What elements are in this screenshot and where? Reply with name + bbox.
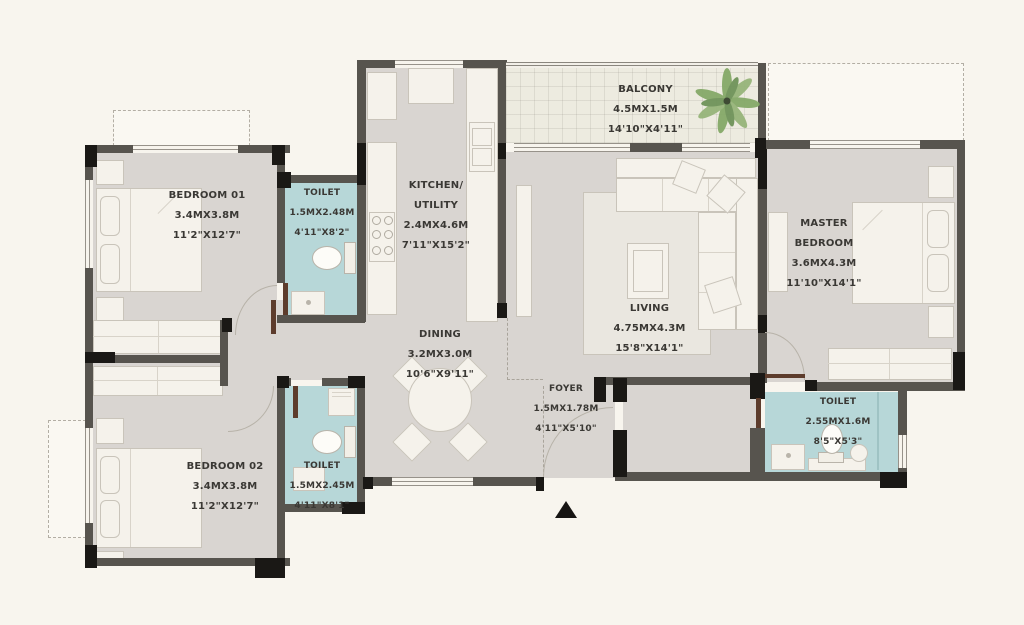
tv-unit	[516, 185, 532, 317]
door-leaf-toilet-1	[283, 283, 288, 315]
sliding-window	[682, 143, 750, 152]
door-leaf-master	[765, 374, 805, 378]
room-label-dining: DINING 3.2MX3.0M 10'6"X9'11"	[380, 325, 500, 385]
wall-column-block	[255, 558, 285, 578]
wall-segment	[498, 63, 506, 318]
pillow	[927, 210, 949, 248]
room-label-foyer: FOYER 1.5MX1.78M 4'11"X5'10"	[524, 379, 608, 439]
window	[85, 180, 93, 268]
room-dim-imperial: 14'10"X4'11"	[578, 120, 713, 140]
wall-segment	[805, 382, 965, 391]
floor-lobby	[623, 385, 758, 473]
room-dim-metric: 1.5MX2.48M	[283, 203, 361, 223]
room-dim-imperial: 11'2"X12'7"	[150, 497, 300, 517]
sliding-window	[514, 143, 630, 152]
room-name: UTILITY	[377, 196, 495, 216]
wc-cistern	[344, 426, 356, 458]
wall-column-block	[277, 376, 289, 388]
nightstand	[96, 160, 124, 185]
room-name: FOYER	[524, 379, 608, 399]
room-label-toilet-1: TOILET 1.5MX2.48M 4'11"X8'2"	[283, 183, 361, 243]
window	[395, 60, 463, 68]
plan-detail	[724, 98, 731, 105]
room-label-bedroom-01: BEDROOM 01 3.4MX3.8M 11'2"X12'7"	[132, 186, 282, 246]
wall-column-block	[357, 143, 366, 185]
ledge-above-bedroom-01	[113, 110, 250, 146]
wall-column-block	[536, 477, 544, 491]
room-label-living: LIVING 4.75MX4.3M 15'8"X14'1"	[582, 299, 717, 359]
room-label-toilet-3: TOILET 1.5MX2.45M 4'11"X8'1"	[283, 456, 361, 516]
room-name: TOILET	[283, 183, 361, 203]
room-label-toilet-2: TOILET 2.55MX1.6M 8'5"X5'3"	[782, 392, 894, 452]
room-name: KITCHEN/	[377, 176, 495, 196]
room-dim-imperial: 11'10"X14'1"	[768, 274, 880, 294]
wardrobe	[828, 348, 952, 380]
wall-column-block	[85, 545, 97, 568]
wall-column-block	[758, 149, 767, 189]
wall-column-block	[750, 373, 765, 399]
room-name: BEDROOM	[768, 234, 880, 254]
window	[133, 145, 238, 153]
detail-line	[306, 300, 311, 305]
wall-column-block	[953, 352, 965, 390]
pillow	[100, 500, 120, 538]
room-dim-imperial: 7'11"X15'2"	[377, 236, 495, 256]
room-name: BEDROOM 01	[132, 186, 282, 206]
room-dim-metric: 2.4MX4.6M	[377, 216, 495, 236]
room-dim-metric: 4.5MX1.5M	[578, 100, 713, 120]
coffee-table-top	[633, 250, 663, 292]
wall-column-block	[85, 352, 115, 363]
detail-line	[130, 449, 131, 547]
detail-line	[93, 336, 225, 337]
wall-column-block	[272, 145, 285, 165]
wardrobe	[93, 366, 223, 396]
wardrobe	[93, 320, 225, 354]
sofa-back	[736, 178, 758, 330]
door-leaf-toilet-2	[756, 398, 761, 428]
detail-line	[157, 367, 158, 395]
wall-segment	[277, 315, 365, 323]
detail-line	[699, 252, 735, 253]
window	[85, 428, 93, 523]
wall-column-block	[85, 145, 97, 167]
pillow	[100, 196, 120, 236]
window	[898, 435, 907, 468]
detail-line	[130, 189, 131, 291]
ledge-left-of-bedroom-02	[48, 420, 86, 538]
detail-line	[922, 203, 923, 303]
sink-basin	[472, 128, 492, 146]
room-label-bedroom-02: BEDROOM 02 3.4MX3.8M 11'2"X12'7"	[150, 457, 300, 517]
detail-line	[332, 392, 351, 393]
wall-column-block	[348, 376, 365, 388]
detail-line	[507, 318, 508, 380]
wall-segment	[630, 143, 682, 152]
room-dim-metric: 3.4MX3.8M	[132, 206, 282, 226]
wall-column-block	[805, 380, 817, 391]
nightstand	[928, 306, 954, 338]
room-name: BALCONY	[578, 80, 713, 100]
open-terrace-above-master	[768, 63, 964, 141]
sink-basin	[472, 148, 492, 166]
nightstand	[96, 297, 124, 322]
wall-segment	[615, 472, 758, 481]
floor-passage	[283, 322, 365, 380]
wc-icon	[312, 430, 342, 454]
room-name: TOILET	[782, 392, 894, 412]
wc-cistern	[344, 242, 356, 274]
room-dim-imperial: 11'2"X12'7"	[132, 226, 282, 246]
door-leaf-toilet-3	[293, 386, 298, 418]
entry-arrow-icon	[555, 501, 577, 518]
pillow	[927, 254, 949, 292]
detail-line	[889, 349, 890, 379]
detail-line	[332, 396, 351, 397]
window	[810, 140, 920, 149]
detail-line	[662, 179, 663, 211]
room-dim-metric: 4.75MX4.3M	[582, 319, 717, 339]
detail-line	[786, 453, 791, 458]
room-dim-metric: 3.2MX3.0M	[380, 345, 500, 365]
window	[392, 477, 473, 486]
floor-plan: BEDROOM 01 3.4MX3.8M 11'2"X12'7" TOILET …	[0, 0, 1024, 625]
room-label-kitchen: KITCHEN/ UTILITY 2.4MX4.6M 7'11"X15'2"	[377, 176, 495, 256]
room-dim-imperial: 4'11"X8'2"	[283, 223, 361, 243]
room-dim-imperial: 4'11"X5'10"	[524, 419, 608, 439]
room-dim-metric: 3.6MX4.3M	[768, 254, 880, 274]
wall-column-block	[498, 143, 506, 159]
door-leaf-bedroom-01	[271, 300, 276, 334]
detail-line	[158, 321, 159, 353]
room-label-master-bedroom: MASTER BEDROOM 3.6MX4.3M 11'10"X14'1"	[768, 214, 880, 294]
nightstand	[96, 418, 124, 444]
room-name: DINING	[380, 325, 500, 345]
room-label-balcony: BALCONY 4.5MX1.5M 14'10"X4'11"	[578, 80, 713, 140]
room-dim-imperial: 10'6"X9'11"	[380, 365, 500, 385]
pillow	[100, 244, 120, 284]
room-dim-imperial: 8'5"X5'3"	[782, 432, 894, 452]
wall-column-block	[758, 315, 767, 333]
room-name: BEDROOM 02	[150, 457, 300, 477]
room-dim-metric: 2.55MX1.6M	[782, 412, 894, 432]
wall-column-block	[497, 303, 507, 318]
wall-column-block	[613, 378, 627, 402]
room-name: MASTER	[768, 214, 880, 234]
nightstand	[928, 166, 954, 198]
detail-line	[93, 380, 223, 381]
room-dim-imperial: 4'11"X8'1"	[283, 496, 361, 516]
wall-column-block	[613, 430, 627, 477]
room-dim-metric: 3.4MX3.8M	[150, 477, 300, 497]
kitchen-cabinet	[367, 72, 397, 120]
wc-icon	[312, 246, 342, 270]
wall-segment	[750, 428, 765, 472]
detail-line	[828, 363, 952, 364]
room-dim-metric: 1.5MX1.78M	[524, 399, 608, 419]
pillow	[100, 456, 120, 494]
wall-column-block	[222, 318, 232, 332]
room-dim-imperial: 15'8"X14'1"	[582, 339, 717, 359]
wall-column-block	[363, 477, 373, 489]
room-name: LIVING	[582, 299, 717, 319]
wall-column-block	[880, 472, 907, 488]
room-name: TOILET	[283, 456, 361, 476]
room-dim-metric: 1.5MX2.45M	[283, 476, 361, 496]
refrigerator	[408, 68, 454, 104]
